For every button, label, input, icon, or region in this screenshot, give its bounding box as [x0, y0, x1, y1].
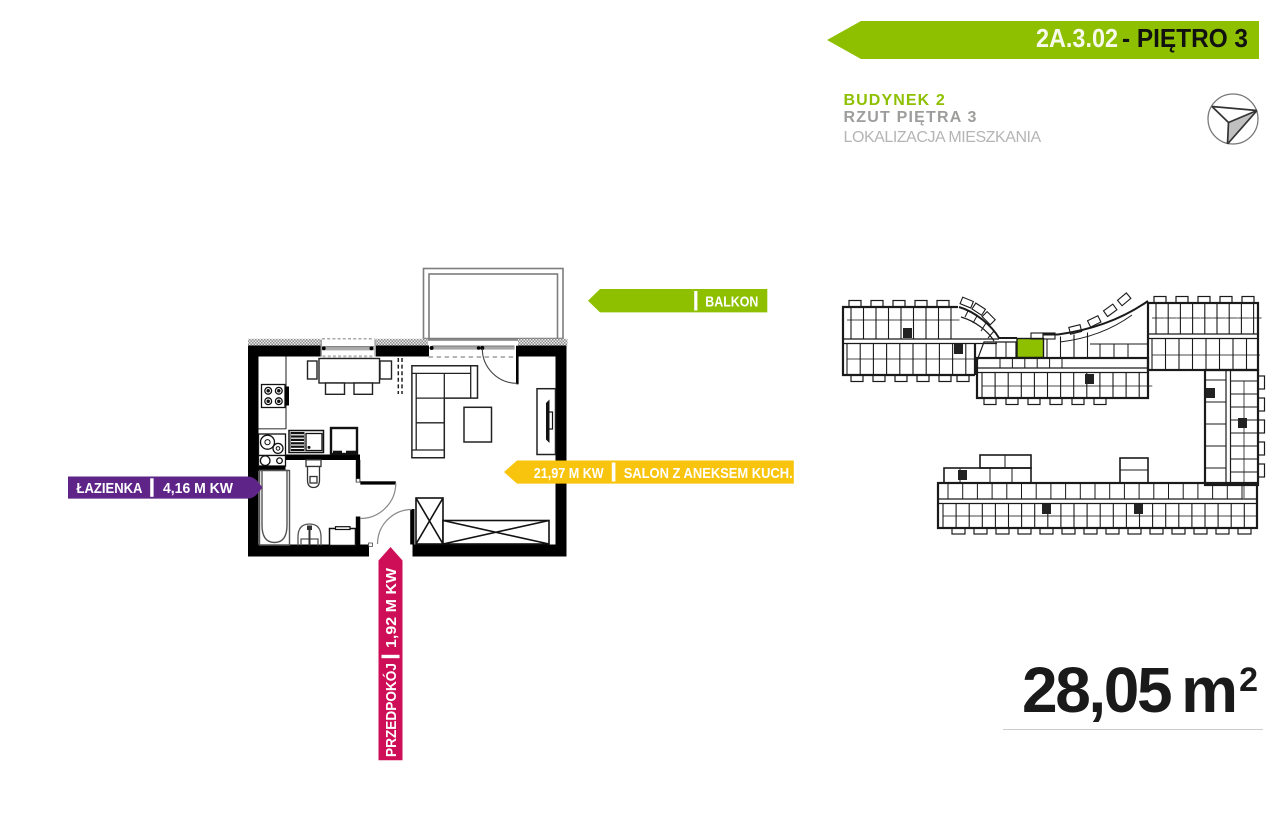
svg-text:1,92 M KW: 1,92 M KW — [384, 568, 400, 648]
svg-text:ŁAZIENKA: ŁAZIENKA — [77, 481, 143, 497]
svg-text:21,97 M KW: 21,97 M KW — [534, 465, 605, 482]
svg-text:BALKON: BALKON — [705, 293, 758, 310]
svg-text:PRZEDPOKÓJ: PRZEDPOKÓJ — [382, 663, 400, 757]
svg-text:SALON Z ANEKSEM KUCH.: SALON Z ANEKSEM KUCH. — [624, 465, 793, 482]
svg-text:- PIĘTRO 3: - PIĘTRO 3 — [1122, 23, 1248, 53]
svg-text:2A.3.02: 2A.3.02 — [1036, 23, 1118, 53]
svg-text:4,16 M KW: 4,16 M KW — [163, 481, 233, 497]
